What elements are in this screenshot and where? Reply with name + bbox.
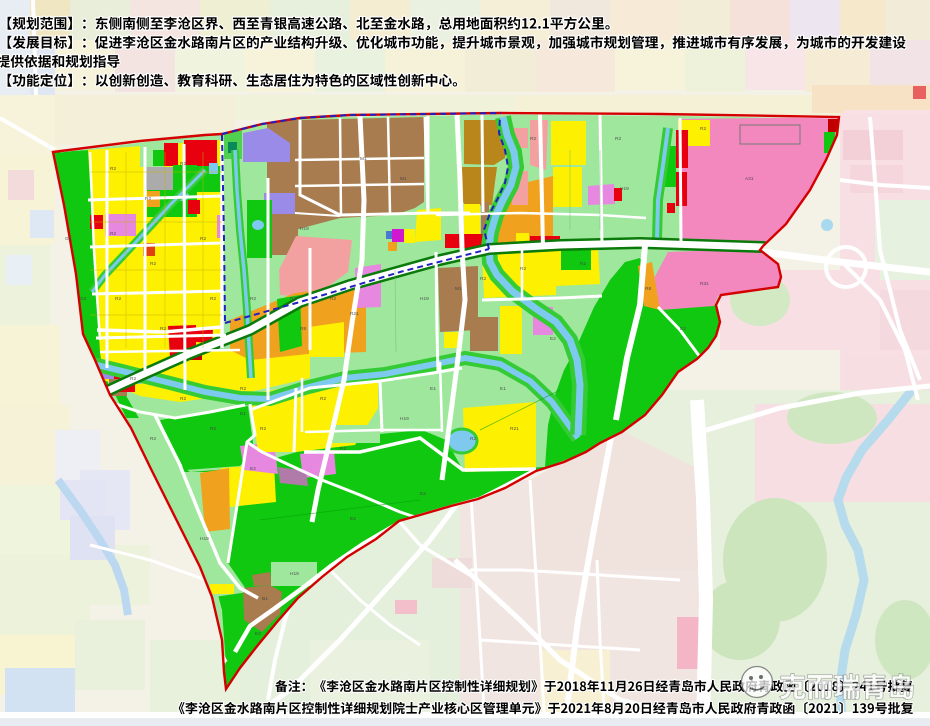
svg-text:E2: E2 [550,336,556,342]
svg-text:G2: G2 [65,236,72,242]
svg-text:R2: R2 [200,236,206,242]
svg-text:R2: R2 [470,436,476,442]
svg-text:E1: E1 [240,411,246,417]
svg-text:E2: E2 [350,516,356,522]
svg-text:H19: H19 [400,416,409,422]
svg-text:H19: H19 [300,226,309,232]
svg-text:R2: R2 [160,326,166,332]
svg-text:R2: R2 [330,296,336,302]
svg-text:R2: R2 [115,296,121,302]
svg-text:R2: R2 [240,386,246,392]
svg-text:E2: E2 [255,631,261,637]
svg-text:R2: R2 [320,396,326,402]
svg-text:R2: R2 [250,296,256,302]
svg-text:R2: R2 [615,136,621,142]
svg-text:R2: R2 [700,126,706,132]
svg-text:E2: E2 [250,466,256,472]
svg-text:R2: R2 [145,196,151,202]
svg-text:E2: E2 [680,326,686,332]
svg-text:E1: E1 [430,386,436,392]
svg-text:R2: R2 [110,231,116,237]
svg-text:R2: R2 [110,166,116,172]
svg-text:R2: R2 [260,426,266,432]
svg-text:R21: R21 [350,311,359,317]
svg-text:R2: R2 [290,296,296,302]
svg-text:R2: R2 [180,396,186,402]
svg-text:H19: H19 [200,536,209,542]
svg-text:R2: R2 [210,296,216,302]
svg-text:R2: R2 [530,136,536,142]
svg-text:A31: A31 [745,176,754,182]
svg-text:M1: M1 [400,176,407,182]
svg-text:M1: M1 [455,286,462,292]
svg-text:R2: R2 [520,266,526,272]
svg-text:R8: R8 [300,326,306,332]
svg-text:R2: R2 [580,261,586,267]
svg-text:B1: B1 [262,596,268,602]
svg-text:R2: R2 [210,426,216,432]
svg-text:R2: R2 [340,446,346,452]
svg-text:R2: R2 [130,376,136,382]
svg-text:E1: E1 [500,386,506,392]
svg-text:H19: H19 [290,571,299,577]
svg-text:H19: H19 [620,186,629,192]
svg-text:E2: E2 [420,491,426,497]
svg-text:M1: M1 [360,156,367,162]
svg-text:R2: R2 [150,436,156,442]
svg-text:H19: H19 [420,296,429,302]
svg-text:R21: R21 [510,426,519,432]
svg-text:R31: R31 [700,281,709,287]
svg-text:R2: R2 [480,276,486,282]
svg-text:G2: G2 [80,296,87,302]
svg-text:R8: R8 [645,286,651,292]
svg-text:R2: R2 [180,161,186,167]
svg-text:R2: R2 [150,261,156,267]
